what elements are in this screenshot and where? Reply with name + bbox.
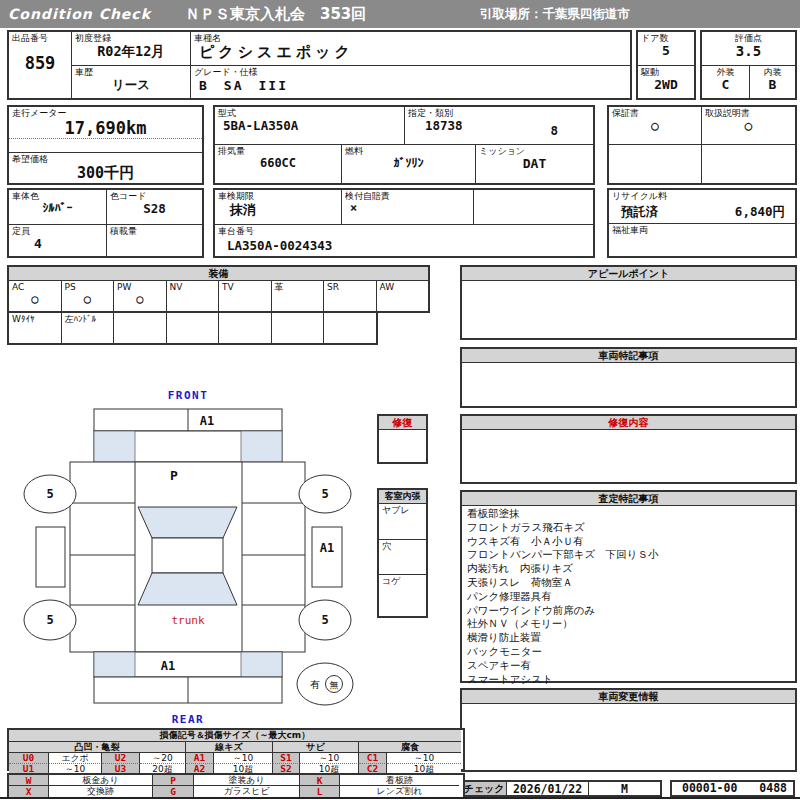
documents-empty-cell-1 (609, 145, 702, 183)
equipment-extra-label: Wﾀｲﾔ (9, 313, 61, 324)
rear-label: REAR (172, 713, 205, 726)
equipment-title: 装備 (9, 267, 428, 281)
interior-grade-cell: 内装 B (750, 66, 795, 98)
equipment-extra-cell: 左ﾊﾝﾄﾞﾙ (62, 313, 115, 343)
usage-history-cell: 車歴 リース (72, 66, 190, 98)
drive-cell: 駆動 2WD (638, 66, 694, 98)
drive-value: 2WD (638, 77, 694, 92)
model-name-cell: 車種名 ピクシスエポック (191, 32, 630, 66)
front-left-pillar-shade (94, 431, 135, 462)
legend-value: ～10 (300, 753, 359, 764)
type-class-label: 指定・類別 (405, 107, 593, 118)
damage-legend-title: 損傷記号＆損傷サイズ（～最大cm） (9, 730, 461, 742)
right-side-strip (312, 527, 342, 587)
capacity-value: 4 (9, 236, 106, 251)
check-date: 2026/01/22 (507, 782, 589, 795)
documents-block: 保証書 ○ 取扱説明書 ○ (607, 105, 797, 185)
equipment-label: 革 (272, 281, 324, 292)
grade-cell: グレード・仕様 B SA III (191, 66, 630, 98)
price-label: 希望価格 (9, 153, 202, 164)
color-code-value: S28 (107, 201, 202, 216)
equipment-table-row2: Wﾀｲﾔ 左ﾊﾝﾄﾞﾙ (7, 311, 378, 345)
auction-title: ＮＰＳ東京入札会 353回 (185, 0, 366, 28)
repair-content-title: 修復内容 (462, 416, 795, 430)
manual-mark: ○ (702, 118, 795, 133)
equipment-cell-sr: SR (324, 281, 377, 312)
left-side-strip (36, 527, 65, 587)
assessment-notes-title: 査定特記事項 (462, 492, 795, 506)
front-label: FRONT (168, 389, 209, 402)
sheet-code-box: 00001-00 0488 (670, 780, 795, 797)
price-cell: 希望価格 300千円 (9, 152, 202, 183)
doors-drive-block: ドア数 5 駆動 2WD (636, 30, 696, 100)
lot-number-cell: 出品番号 859 (9, 32, 72, 98)
doors-value: 5 (638, 43, 694, 58)
legend-code: K (300, 775, 340, 786)
model-name-label: 車種名 (191, 32, 630, 43)
equipment-label: SR (324, 281, 376, 292)
documents-empty-cell-2 (702, 145, 795, 183)
wheel-mark: 5 (46, 487, 53, 501)
color-capacity-block: 車体色 ｼﾙﾊﾞｰ 色コード S28 定員 4 積載量 (7, 188, 204, 258)
first-registration-label: 初度登録 (72, 32, 190, 43)
wheel-mark: 5 (321, 613, 328, 627)
type-class-cell: 指定・類別 18738 8 (405, 107, 593, 144)
exterior-grade-cell: 外装 C (702, 66, 750, 98)
recycle-label: リサイクル料 (609, 190, 795, 201)
insurance-cell: 検付自賠責 × (342, 190, 474, 224)
rear-left-pillar-shade (94, 652, 135, 677)
equipment-extra-cell (272, 313, 325, 343)
doors-cell: ドア数 5 (638, 32, 694, 66)
vehicle-notes-section: 車両特記事項 (460, 347, 797, 408)
welfare-cell: 福祉車両 (609, 224, 795, 256)
capacity-label: 定員 (9, 225, 106, 236)
equipment-cell-tv: TV (219, 281, 272, 312)
fuel-value: ｶﾞｿﾘﾝ (342, 156, 475, 170)
odometer-cell: 走行メーター 17,690km (9, 107, 202, 139)
equipment-label: PW (114, 281, 166, 292)
legend-code: P (153, 775, 194, 786)
vehicle-notes-title: 車両特記事項 (462, 349, 795, 363)
equipment-cell-pw: PW○ (114, 281, 167, 312)
bottom-rule (0, 797, 800, 799)
capacity-cell: 定員 4 (9, 225, 107, 256)
equipment-mark: ○ (114, 292, 166, 306)
brand-logo: Condition Check (8, 0, 151, 28)
appeal-points-section: アピールポイント (460, 265, 797, 340)
interior-grade-value: B (750, 77, 795, 92)
equipment-cell-nv: NV (167, 281, 220, 312)
cabin-row-label: ヤブレ (379, 504, 426, 515)
displacement-value: 660CC (215, 156, 341, 170)
assessment-line: フロントバンパー下部キズ 下回りＳ小 (467, 548, 795, 562)
legend-value: ～10 (387, 753, 461, 764)
mission-label: ミッション (476, 145, 593, 156)
windshield (138, 507, 237, 538)
sheet-code-2: 0488 (759, 782, 787, 795)
assessment-line: 天張りスレ 荷物室Ａ (467, 576, 795, 590)
mission-value: DAT (476, 156, 593, 171)
front-bumper-mark: A1 (200, 414, 214, 428)
assessment-line: パワーウインドウ前席のみ (467, 604, 795, 618)
trunk-label: trunk (171, 614, 204, 627)
score-label: 評価点 (702, 32, 795, 43)
fuel-cell: 燃料 ｶﾞｿﾘﾝ (342, 145, 476, 183)
equipment-extra-cell: Wﾀｲﾔ (9, 313, 62, 343)
welfare-label: 福祉車両 (609, 224, 795, 235)
equipment-mark: ○ (62, 292, 114, 306)
manual-cell: 取扱説明書 ○ (702, 107, 795, 144)
recycle-block: リサイクル料 預託済 6,840円 福祉車両 (607, 188, 797, 258)
legend-value: ～20 (140, 753, 186, 764)
bonnet-mark: P (170, 468, 178, 483)
equipment-mark: ○ (9, 292, 61, 306)
rear-gate-mark: A1 (161, 659, 175, 673)
manual-label: 取扱説明書 (702, 107, 795, 118)
inspection-empty-cell (474, 190, 593, 224)
warranty-label: 保証書 (609, 107, 701, 118)
assessment-line: スマートアシスト (467, 673, 795, 687)
appeal-points-title: アピールポイント (462, 267, 795, 281)
legend-value: 板金あり (49, 775, 153, 786)
equipment-table: 装備 AC○ PS○ PW○ NV TV 革 SR AW (7, 265, 430, 313)
engine-block: 型式 5BA-LA350A 指定・類別 18738 8 排気量 660CC 燃料… (213, 105, 595, 185)
legend-code: W (9, 775, 49, 786)
wheel-mark: 5 (46, 613, 53, 627)
odometer-spacer (9, 139, 202, 152)
usage-history-label: 車歴 (72, 66, 190, 77)
legend-value: ガラスヒビ (194, 786, 300, 797)
cabin-interior-box: 客室内張 ヤブレ 穴 コゲ (377, 488, 428, 618)
displacement-label: 排気量 (215, 145, 341, 156)
odometer-value: 17,690km (9, 118, 202, 138)
pickup-location: 引取場所：千葉県四街道市 (480, 0, 630, 28)
cabin-interior-title: 客室内張 (379, 490, 426, 504)
legend-group-dent: 凸凹・亀裂 (9, 742, 186, 753)
model-code-value: 5BA-LA350A (215, 118, 404, 133)
grade-value: B SA III (191, 77, 630, 95)
roof-panel (152, 538, 223, 573)
score-value: 3.5 (702, 43, 795, 59)
assessment-line: バックモニター (467, 645, 795, 659)
grade-label: グレード・仕様 (191, 66, 630, 77)
first-registration-value: R02年12月 (72, 43, 190, 61)
cabin-row-tear: ヤブレ (379, 504, 426, 540)
repair-mini-box: 修復 (377, 414, 428, 464)
fuel-label: 燃料 (342, 145, 475, 156)
repair-mini-title: 修復 (379, 416, 426, 430)
wheel-mark: 5 (321, 487, 328, 501)
warranty-cell: 保証書 ○ (609, 107, 702, 144)
equipment-extra-cell (324, 313, 376, 343)
equipment-cell-leather: 革 (272, 281, 325, 312)
check-inspector: M (589, 782, 660, 795)
legend-value: 交換跡 (49, 786, 153, 797)
equipment-extra-cell (114, 313, 167, 343)
equipment-extra-cell (167, 313, 220, 343)
rear-window (138, 573, 237, 605)
equipment-extra-label: 左ﾊﾝﾄﾞﾙ (62, 313, 114, 324)
vin-value: LA350A-0024343 (215, 238, 593, 253)
header-bar: Condition Check ＮＰＳ東京入札会 353回 引取場所：千葉県四街… (0, 0, 800, 28)
legend-value: レンズ割れ (340, 786, 459, 797)
car-damage-diagram: FRONT A1 P trunk A1 5 5 5 (0, 385, 360, 730)
model-code-label: 型式 (215, 107, 404, 118)
usage-history-value: リース (72, 77, 190, 94)
equipment-label: AC (9, 281, 61, 292)
assessment-line: パンク修理器具有 (467, 590, 795, 604)
insurance-label: 検付自賠責 (342, 190, 473, 201)
assessment-line: 横滑り防止装置 (467, 631, 795, 645)
lot-number-label: 出品番号 (9, 32, 71, 43)
mission-cell: ミッション DAT (476, 145, 593, 183)
color-code-label: 色コード (107, 190, 202, 201)
equipment-extra-cell (219, 313, 272, 343)
price-value: 300千円 (9, 164, 202, 183)
equipment-label: TV (219, 281, 271, 292)
drive-label: 駆動 (638, 66, 694, 77)
score-cell: 評価点 3.5 (702, 32, 795, 66)
warranty-mark: ○ (609, 118, 701, 133)
equipment-cell-aw: AW (377, 281, 429, 312)
assessment-line: ウスキズ有 小Ａ小Ｕ有 (467, 535, 795, 549)
assessment-notes-section: 査定特記事項 看板部塗抹 フロントガラス飛石キズ ウスキズ有 小Ａ小Ｕ有 フロン… (460, 490, 797, 683)
cabin-row-label: 穴 (379, 540, 426, 551)
recycle-status: 預託済 (621, 204, 659, 221)
assessment-line: 看板部塗抹 (467, 507, 795, 521)
legend-value: ～10 (214, 753, 273, 764)
type-class-value1: 18738 (405, 118, 593, 133)
displacement-cell: 排気量 660CC (215, 145, 342, 183)
recycle-amount: 6,840円 (735, 204, 785, 221)
load-cell: 積載量 (107, 225, 202, 256)
equipment-label: NV (167, 281, 219, 292)
repair-history-no: 無 (330, 680, 339, 690)
rear-right-pillar-shade (241, 652, 282, 677)
cabin-row-burn: コゲ (379, 575, 426, 616)
change-info-title: 車両変更情報 (462, 690, 795, 704)
cabin-row-label: コゲ (379, 575, 426, 586)
inspection-label: 車検期限 (215, 190, 341, 201)
front-right-pillar-shade (241, 431, 282, 462)
inspection-value: 抹消 (215, 201, 341, 219)
assessment-line: スペアキー有 (467, 659, 795, 673)
sheet-code-1: 00001-00 (682, 782, 737, 795)
body-color-value: ｼﾙﾊﾞｰ (9, 201, 106, 215)
equipment-label: PS (62, 281, 114, 292)
right-side-mark: A1 (320, 541, 334, 555)
lot-number-value: 859 (9, 53, 71, 73)
load-label: 積載量 (107, 225, 202, 236)
exterior-grade-label: 外装 (702, 66, 749, 77)
legend-code: G (153, 786, 194, 797)
vin-cell: 車台番号 LA350A-0024343 (215, 225, 593, 256)
legend-value: エクボ (49, 753, 102, 764)
exterior-grade-value: C (702, 77, 749, 92)
change-info-section: 車両変更情報 (460, 688, 797, 772)
interior-grade-label: 内装 (750, 66, 795, 77)
inspection-vin-block: 車検期限 抹消 検付自賠責 × 車台番号 LA350A-0024343 (213, 188, 595, 258)
repair-content-section: 修復内容 (460, 414, 797, 484)
odometer-price-block: 走行メーター 17,690km 希望価格 300千円 (7, 105, 204, 185)
doors-label: ドア数 (638, 32, 694, 43)
legend-value: 塗装あり (194, 775, 300, 786)
vehicle-id-block: 出品番号 859 初度登録 R02年12月 車歴 リース 車種名 ピクシスエポッ… (7, 30, 632, 100)
legend-code: X (9, 786, 49, 797)
assessment-line: 社外ＮＶ（メモリー） (467, 617, 795, 631)
legend-code: L (300, 786, 340, 797)
odometer-label: 走行メーター (9, 107, 202, 118)
recycle-cell: リサイクル料 預託済 6,840円 (609, 190, 795, 224)
vin-label: 車台番号 (215, 225, 593, 236)
repair-legend-table: W 板金あり P 塗装あり K 看板跡 X 交換跡 G ガラスヒビ L レンズ割… (7, 773, 465, 799)
assessment-line: 内装汚れ 内張りキズ (467, 562, 795, 576)
score-block: 評価点 3.5 外装 C 内装 B (700, 30, 797, 100)
condition-check-sheet: Condition Check ＮＰＳ東京入札会 353回 引取場所：千葉県四街… (0, 0, 800, 800)
damage-legend-table: 損傷記号＆損傷サイズ（～最大cm） 凸凹・亀裂 線キズ サビ 腐食 U0 エクボ… (7, 728, 465, 771)
model-code-cell: 型式 5BA-LA350A (215, 107, 405, 144)
check-label: チェック (462, 782, 507, 795)
legend-value: 看板跡 (340, 775, 459, 786)
body-color-label: 車体色 (9, 190, 106, 201)
first-registration-cell: 初度登録 R02年12月 (72, 32, 190, 66)
inspection-cell: 車検期限 抹消 (215, 190, 342, 224)
color-code-cell: 色コード S28 (107, 190, 202, 224)
equipment-cell-ac: AC○ (9, 281, 62, 312)
type-class-value2: 8 (550, 123, 558, 138)
model-name-value: ピクシスエポック (191, 43, 630, 62)
check-bar: チェック 2026/01/22 M (460, 780, 662, 797)
equipment-label: AW (377, 281, 429, 292)
assessment-line: フロントガラス飛石キズ (467, 521, 795, 535)
body-color-cell: 車体色 ｼﾙﾊﾞｰ (9, 190, 107, 224)
insurance-mark: × (342, 201, 473, 215)
equipment-cell-ps: PS○ (62, 281, 115, 312)
cabin-row-hole: 穴 (379, 540, 426, 575)
repair-history-yes: 有 (310, 679, 320, 690)
